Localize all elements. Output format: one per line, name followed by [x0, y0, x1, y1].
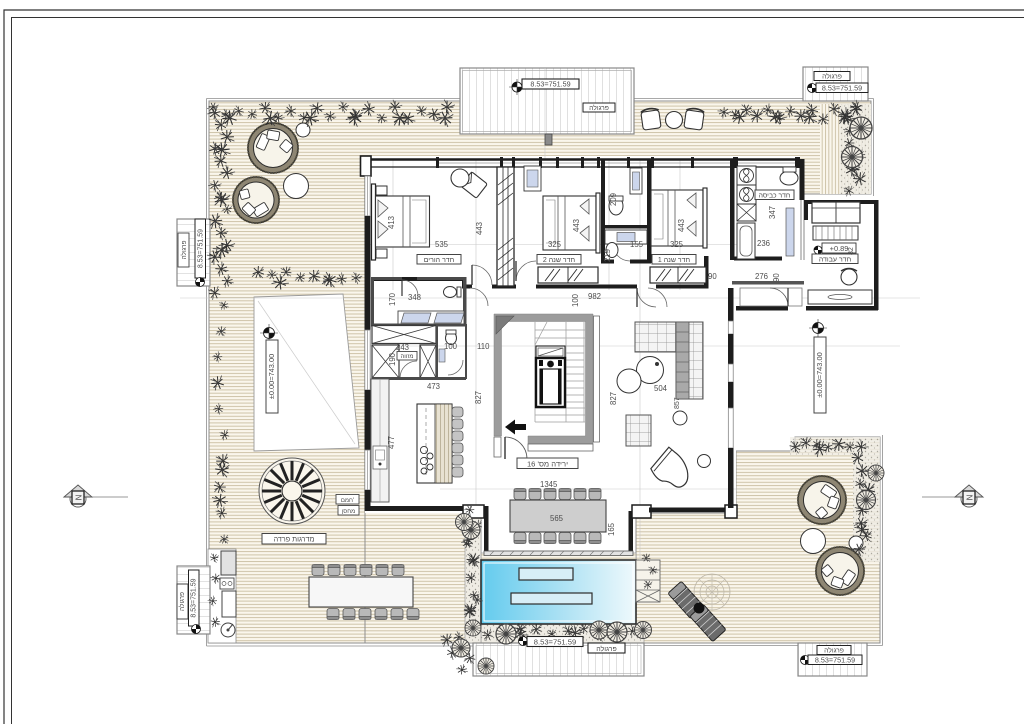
svg-text:פרגולה: פרגולה — [596, 645, 616, 653]
svg-text:100: 100 — [571, 293, 580, 307]
svg-text:827: 827 — [474, 391, 483, 404]
svg-text:170: 170 — [388, 292, 397, 306]
svg-text:90: 90 — [772, 273, 781, 282]
svg-text:165: 165 — [607, 522, 616, 536]
svg-text:982: 982 — [588, 292, 601, 301]
svg-text:חדר שנה 1: חדר שנה 1 — [658, 257, 691, 264]
svg-text:מדרגות פרדה: מדרגות פרדה — [274, 535, 315, 544]
svg-text:חדר עבודה: חדר עבודה — [819, 257, 852, 264]
svg-text:504: 504 — [654, 384, 668, 393]
svg-text:±0.00=743.00: ±0.00=743.00 — [267, 354, 276, 399]
svg-text:8.53=751.59: 8.53=751.59 — [198, 229, 205, 268]
svg-text:ירידה מס' 16: ירידה מס' 16 — [527, 460, 568, 469]
svg-text:N: N — [75, 494, 84, 500]
svg-text:209: 209 — [609, 193, 618, 206]
svg-text:443: 443 — [475, 222, 484, 235]
svg-text:מחסן: מחסן — [342, 509, 356, 515]
svg-text:477: 477 — [387, 436, 396, 449]
svg-text:חדר שנה 2: חדר שנה 2 — [543, 257, 576, 264]
svg-text:פרגולה: פרגולה — [589, 104, 609, 112]
svg-text:+0.89: +0.89 — [830, 244, 849, 253]
svg-text:פרגולה: פרגולה — [824, 647, 844, 655]
svg-text:8.53=751.59: 8.53=751.59 — [530, 80, 570, 89]
svg-text:8.53=751.59: 8.53=751.59 — [815, 656, 855, 665]
svg-text:100: 100 — [444, 342, 458, 351]
svg-text:443: 443 — [572, 219, 581, 232]
svg-text:827: 827 — [609, 392, 618, 405]
svg-text:857: 857 — [674, 397, 681, 409]
svg-text:פרגולה: פרגולה — [822, 73, 842, 81]
svg-text:190: 190 — [388, 352, 397, 366]
svg-text:1345: 1345 — [540, 480, 558, 489]
svg-text:443: 443 — [677, 219, 686, 232]
svg-text:מזווה: מזווה — [401, 354, 414, 360]
svg-text:חמם': חמם' — [341, 498, 354, 504]
svg-text:565: 565 — [550, 514, 564, 523]
svg-text:8.53=751.59: 8.53=751.59 — [191, 578, 198, 617]
svg-text:325: 325 — [548, 240, 562, 249]
svg-text:90: 90 — [708, 272, 717, 281]
svg-text:236: 236 — [757, 239, 770, 248]
svg-text:N: N — [966, 494, 975, 500]
svg-text:325: 325 — [670, 240, 684, 249]
svg-text:155: 155 — [630, 240, 644, 249]
svg-text:±0.00=743.00: ±0.00=743.00 — [815, 352, 824, 397]
svg-text:פרגולה: פרגולה — [178, 592, 186, 611]
svg-text:110: 110 — [477, 342, 490, 351]
svg-text:348: 348 — [408, 293, 421, 302]
svg-text:413: 413 — [387, 216, 396, 229]
svg-text:חדר כביסה: חדר כביסה — [759, 193, 791, 200]
svg-text:חדר הורים: חדר הורים — [424, 257, 455, 264]
svg-text:347: 347 — [768, 206, 777, 219]
svg-text:8.53=751.59: 8.53=751.59 — [822, 84, 862, 93]
svg-text:8.53=751.59: 8.53=751.59 — [534, 638, 576, 647]
svg-text:276: 276 — [755, 272, 768, 281]
svg-text:473: 473 — [427, 382, 440, 391]
svg-text:535: 535 — [435, 240, 449, 249]
svg-text:פרגולה: פרגולה — [180, 240, 188, 259]
svg-text:82: 82 — [848, 247, 855, 255]
svg-text:243: 243 — [396, 343, 409, 352]
svg-text:219: 219 — [603, 249, 612, 262]
